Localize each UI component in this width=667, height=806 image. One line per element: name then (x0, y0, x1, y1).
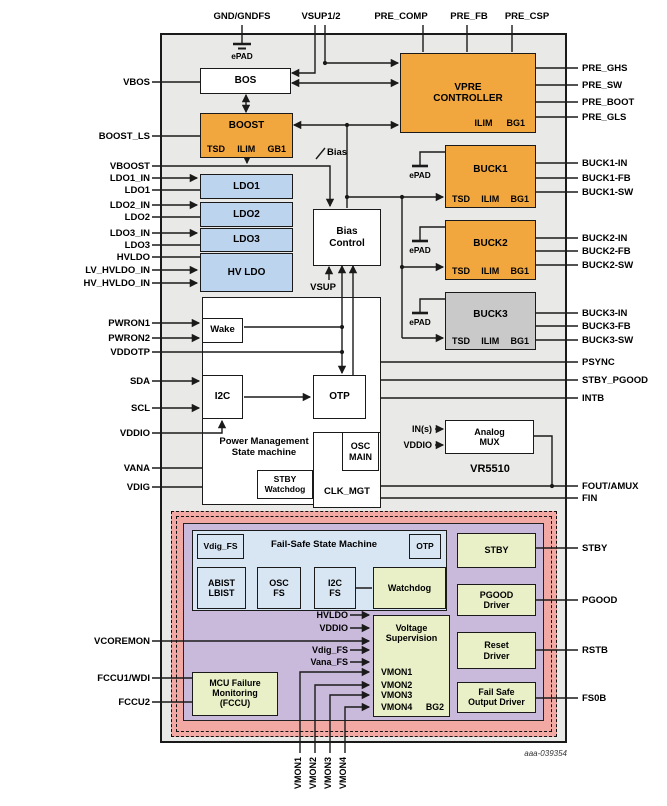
buck3-tsd: TSD (452, 336, 470, 346)
vs-input-vdig-fs: Vdig_FS (293, 645, 348, 655)
buck1-block: BUCK1 TSD ILIM BG1 (445, 145, 536, 208)
buck3-cells: TSD ILIM BG1 (446, 336, 535, 346)
pin-pwron2: PWRON2 (108, 333, 150, 344)
pin-psync: PSYNC (582, 357, 615, 368)
mcu-failure-block: MCU Failure Monitoring (FCCU) (192, 672, 278, 716)
pin-vmon4: VMON4 (338, 757, 348, 789)
vs-bg2: BG2 (426, 703, 444, 713)
buck3-label: BUCK3 (473, 309, 507, 320)
pin-buck1-in: BUCK1-IN (582, 158, 627, 169)
pin-hvldo: HVLDO (117, 252, 150, 263)
vpre-bg1: BG1 (506, 118, 525, 128)
mcu-failure-label: MCU Failure Monitoring (FCCU) (209, 679, 260, 709)
abist-lbist-label: ABIST LBIST (208, 578, 235, 598)
pin-ldo3-in: LDO3_IN (110, 228, 150, 239)
pin-buck2-sw: BUCK2-SW (582, 260, 633, 271)
pin-pgood: PGOOD (582, 595, 617, 606)
pin-buck1-sw: BUCK1-SW (582, 187, 633, 198)
vs-vmon3: VMON3 (381, 691, 412, 701)
buck2-tsd: TSD (452, 266, 470, 276)
pm-state-machine-label: Power Management State machine (205, 436, 323, 459)
buck1-ilim: ILIM (481, 194, 499, 204)
analog-mux-block: Analog MUX (445, 420, 534, 454)
pin-buck3-in: BUCK3-IN (582, 308, 627, 319)
buck1-label: BUCK1 (473, 164, 507, 175)
boost-tsd: TSD (207, 144, 225, 154)
wake-label: Wake (210, 325, 234, 336)
block-diagram: BOS BOOST TSD ILIM GB1 VPRE CONTROLLER I… (0, 0, 667, 806)
pin-buck2-in: BUCK2-IN (582, 233, 627, 244)
failsafe-otp-label: OTP (416, 542, 433, 552)
pin-vmon3: VMON3 (323, 757, 333, 789)
bias-net-label: Bias (327, 147, 347, 158)
pin-pre-comp: PRE_COMP (374, 11, 427, 22)
chip-name: VR5510 (450, 463, 530, 475)
otp-block: OTP (313, 375, 366, 419)
pgood-driver-block: PGOOD Driver (457, 584, 536, 616)
hv-ldo-label: HV LDO (228, 267, 266, 278)
bos-label: BOS (235, 75, 257, 86)
bias-control-label: Bias Control (329, 226, 365, 248)
vpre-label: VPRE CONTROLLER (433, 82, 502, 104)
pin-stby-pgood: STBY_PGOOD (582, 375, 648, 386)
vs-input-vddio: VDDIO (293, 623, 348, 633)
i2c-fs-label: I2C FS (328, 578, 342, 598)
pin-vddotp: VDDOTP (110, 347, 150, 358)
pin-vboost: VBOOST (110, 161, 150, 172)
vs-input-hvldo: HVLDO (293, 610, 348, 620)
i2c-label: I2C (215, 391, 231, 402)
pin-pre-fb: PRE_FB (450, 11, 487, 22)
pin-buck3-fb: BUCK3-FB (582, 321, 631, 332)
pin-fs0b: FS0B (582, 693, 606, 704)
buck3-ilim: ILIM (481, 336, 499, 346)
pin-ldo3: LDO3 (125, 240, 150, 251)
ldo1-label: LDO1 (233, 181, 260, 192)
pin-boost-ls: BOOST_LS (99, 131, 150, 142)
pin-buck1-fb: BUCK1-FB (582, 173, 631, 184)
pin-vcoremon: VCOREMON (94, 636, 150, 647)
epad-top-label: ePAD (228, 51, 256, 61)
failsafe-stby-label: STBY (484, 545, 508, 555)
buck1-tsd: TSD (452, 194, 470, 204)
vpre-controller-block: VPRE CONTROLLER ILIM BG1 (400, 53, 536, 133)
voltage-supervision-block: Voltage Supervision VMON1 VMON2 VMON3 VM… (373, 615, 450, 717)
boost-ilim: ILIM (237, 144, 255, 154)
pin-vmon2: VMON2 (308, 757, 318, 789)
pin-buck3-sw: BUCK3-SW (582, 335, 633, 346)
buck2-label: BUCK2 (473, 238, 507, 249)
epad-buck1-label: ePAD (406, 170, 434, 180)
boost-gb1: GB1 (267, 144, 286, 154)
ldo1-block: LDO1 (200, 174, 293, 199)
pin-scl: SCL (131, 403, 150, 414)
ldo3-label: LDO3 (233, 234, 260, 245)
pgood-driver-label: PGOOD Driver (480, 590, 514, 610)
pin-ldo1-in: LDO1_IN (110, 173, 150, 184)
pin-fccu2: FCCU2 (118, 697, 150, 708)
boost-cells: TSD ILIM GB1 (201, 144, 292, 154)
buck3-bg1: BG1 (510, 336, 529, 346)
buck1-cells: TSD ILIM BG1 (446, 194, 535, 204)
pin-ldo2-in: LDO2_IN (110, 200, 150, 211)
buck2-cells: TSD ILIM BG1 (446, 266, 535, 276)
buck1-bg1: BG1 (510, 194, 529, 204)
pin-fin: FIN (582, 493, 597, 504)
pin-lv-hvldo-in: LV_HVLDO_IN (85, 265, 150, 276)
bos-block: BOS (200, 68, 291, 94)
ldo3-block: LDO3 (200, 228, 293, 252)
buck2-ilim: ILIM (481, 266, 499, 276)
ldo2-label: LDO2 (233, 209, 260, 220)
pin-ldo2: LDO2 (125, 212, 150, 223)
boost-block: BOOST TSD ILIM GB1 (200, 113, 293, 158)
wake-block: Wake (202, 318, 243, 343)
vs-vmon4: VMON4 (381, 703, 412, 713)
otp-label: OTP (329, 391, 350, 402)
pin-rstb: RSTB (582, 645, 608, 656)
failsafe-otp-block: OTP (409, 534, 441, 559)
ldo2-block: LDO2 (200, 202, 293, 227)
reset-driver-block: Reset Driver (457, 632, 536, 669)
reset-driver-label: Reset Driver (483, 640, 509, 660)
vdig-fs-label: Vdig_FS (203, 542, 237, 552)
pin-vsup1-2: VSUP1/2 (301, 11, 340, 22)
pin-vmon1: VMON1 (293, 757, 303, 789)
pin-pwron1: PWRON1 (108, 318, 150, 329)
osc-main-label: OSC MAIN (349, 441, 372, 461)
buck3-block: BUCK3 TSD ILIM BG1 (445, 292, 536, 350)
vs-vmon1: VMON1 (381, 668, 412, 678)
pin-intb: INTB (582, 393, 604, 404)
buck2-block: BUCK2 TSD ILIM BG1 (445, 220, 536, 280)
amux-ins-label: IN(s) (398, 424, 432, 434)
pin-pre-boot: PRE_BOOT (582, 97, 634, 108)
pin-vbos: VBOS (123, 77, 150, 88)
vpre-ilim: ILIM (474, 118, 492, 128)
pin-pre-sw: PRE_SW (582, 80, 622, 91)
i2c-fs-block: I2C FS (314, 567, 356, 609)
pin-fccu1-wdi: FCCU1/WDI (97, 673, 150, 684)
failsafe-state-machine-title: Fail-Safe State Machine (242, 539, 406, 550)
pin-pre-gls: PRE_GLS (582, 112, 626, 123)
pin-buck2-fb: BUCK2-FB (582, 246, 631, 257)
i2c-block: I2C (202, 375, 243, 419)
osc-fs-block: OSC FS (257, 567, 301, 609)
pin-fout-amux: FOUT/AMUX (582, 481, 638, 492)
vpre-cells: ILIM BG1 (474, 118, 525, 128)
figure-id: aaa-039354 (500, 749, 567, 758)
pin-stby: STBY (582, 543, 607, 554)
pin-pre-csp: PRE_CSP (505, 11, 549, 22)
watchdog-block: Watchdog (373, 567, 446, 609)
osc-fs-label: OSC FS (269, 578, 289, 598)
vdig-fs-block: Vdig_FS (197, 534, 244, 559)
pin-pre-ghs: PRE_GHS (582, 63, 627, 74)
pin-sda: SDA (130, 376, 150, 387)
pin-ldo1: LDO1 (125, 185, 150, 196)
voltage-supervision-label: Voltage Supervision (386, 623, 438, 643)
stby-watchdog-block: STBY Watchdog (257, 470, 313, 499)
amux-vddio-label: VDDIO (392, 440, 432, 450)
bias-control-block: Bias Control (313, 209, 381, 266)
pin-hv-hvldo-in: HV_HVLDO_IN (83, 278, 150, 289)
analog-mux-label: Analog MUX (474, 427, 505, 447)
osc-main-block: OSC MAIN (342, 432, 379, 471)
fs-output-driver-block: Fail Safe Output Driver (457, 682, 536, 713)
pin-gnd-gndfs: GND/GNDFS (214, 11, 271, 22)
buck2-bg1: BG1 (510, 266, 529, 276)
vs-input-vana-fs: Vana_FS (293, 657, 348, 667)
abist-lbist-block: ABIST LBIST (197, 567, 246, 609)
epad-buck2-label: ePAD (406, 245, 434, 255)
pin-vdig: VDIG (127, 482, 150, 493)
clk-mgt-label: CLK_MGT (324, 487, 370, 498)
pin-vana: VANA (124, 463, 150, 474)
vsup-net-label: VSUP (306, 282, 336, 293)
watchdog-label: Watchdog (388, 583, 431, 593)
failsafe-stby-block: STBY (457, 533, 536, 568)
epad-buck3-label: ePAD (406, 317, 434, 327)
boost-label: BOOST (229, 120, 265, 131)
stby-watchdog-label: STBY Watchdog (265, 475, 306, 494)
hv-ldo-block: HV LDO (200, 253, 293, 292)
fs-output-driver-label: Fail Safe Output Driver (468, 688, 525, 708)
pin-vddio: VDDIO (120, 428, 150, 439)
